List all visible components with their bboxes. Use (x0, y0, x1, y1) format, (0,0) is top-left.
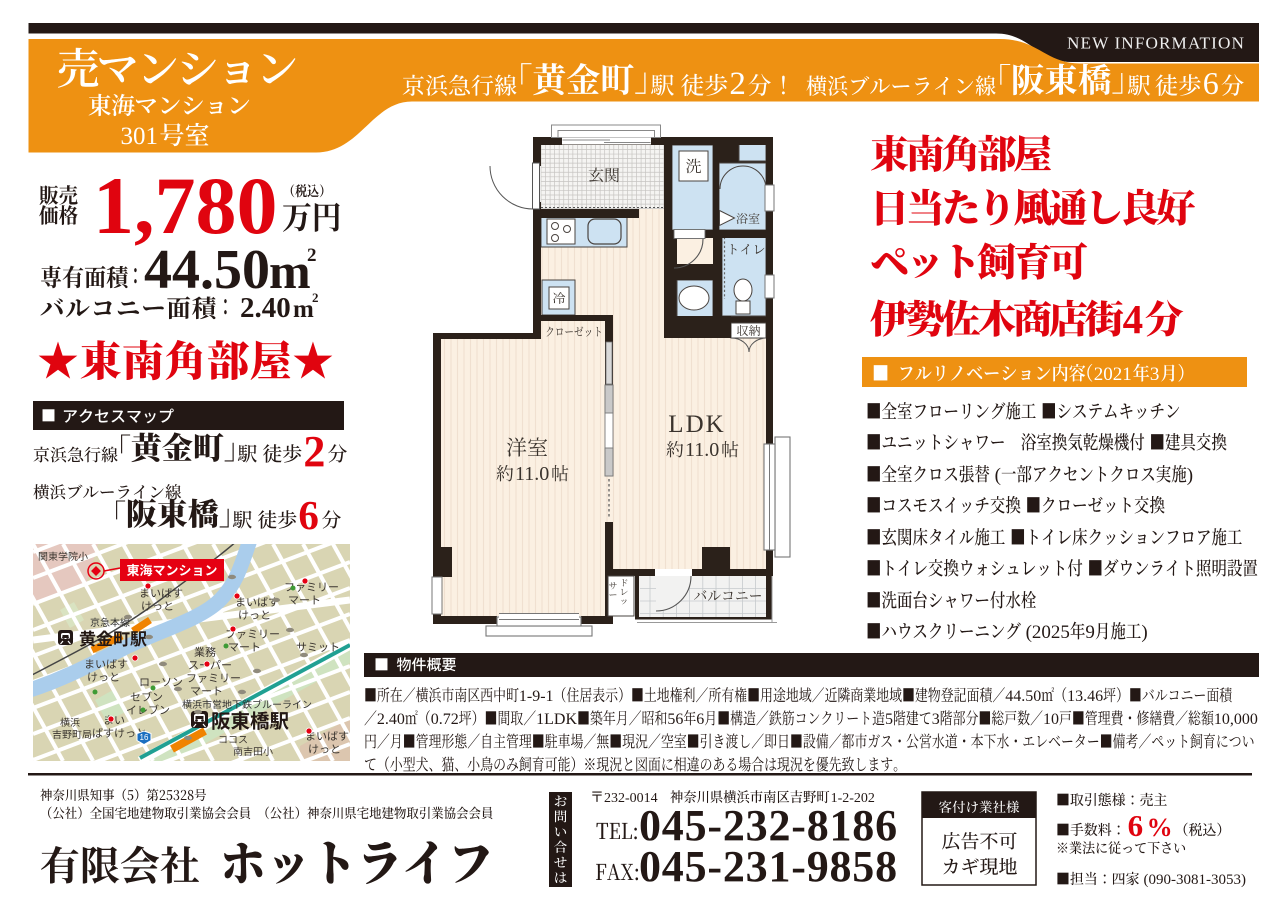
svg-text:2.40: 2.40 (377, 711, 405, 728)
svg-text:6: 6 (696, 711, 704, 728)
svg-text:6: 6 (1203, 65, 1219, 101)
svg-text:2021: 2021 (1094, 364, 1132, 385)
svg-text:LDK: LDK (668, 411, 725, 438)
svg-text:2: 2 (303, 427, 325, 476)
svg-text:2: 2 (312, 290, 319, 305)
svg-text:): ) (1141, 622, 1147, 643)
svg-text:4: 4 (1123, 296, 1144, 342)
svg-text:2.40: 2.40 (240, 292, 291, 324)
svg-text:6: 6 (298, 492, 319, 538)
svg-text:1,780: 1,780 (93, 160, 278, 251)
svg-text:m: m (293, 296, 314, 323)
svg-text:): ) (1187, 465, 1193, 486)
svg-text:16: 16 (140, 733, 149, 742)
svg-text:1LDK: 1LDK (536, 711, 577, 728)
svg-text:11.0: 11.0 (685, 439, 719, 461)
svg-text:2: 2 (307, 245, 317, 266)
svg-text:3: 3 (1150, 364, 1160, 385)
svg-text:10,000: 10,000 (1214, 711, 1258, 728)
svg-text:9: 9 (1085, 622, 1095, 643)
svg-text:3: 3 (932, 711, 940, 728)
svg-text:2: 2 (729, 66, 746, 102)
svg-text:56: 56 (667, 711, 683, 728)
svg-text:44.50: 44.50 (1005, 688, 1041, 705)
svg-text:13.46: 13.46 (1067, 688, 1103, 705)
svg-text:1-9-1: 1-9-1 (519, 688, 554, 705)
svg-text:6: 6 (1128, 808, 1144, 843)
svg-text:5: 5 (885, 711, 893, 728)
svg-text:11.0: 11.0 (515, 463, 549, 485)
svg-text:10: 10 (1043, 711, 1059, 728)
svg-text:0.72: 0.72 (431, 711, 459, 728)
svg-text:045-231-9858: 045-231-9858 (639, 842, 898, 891)
svg-text:m: m (269, 243, 311, 299)
svg-text:NEW INFORMATION: NEW INFORMATION (1067, 34, 1245, 53)
svg-text:(090-3081-3053): (090-3081-3053) (1144, 872, 1246, 888)
svg-text:(2025: (2025 (1026, 622, 1070, 643)
svg-text:301: 301 (121, 123, 159, 150)
svg-text:%: % (1147, 813, 1173, 842)
svg-text:(: ( (995, 465, 1001, 486)
